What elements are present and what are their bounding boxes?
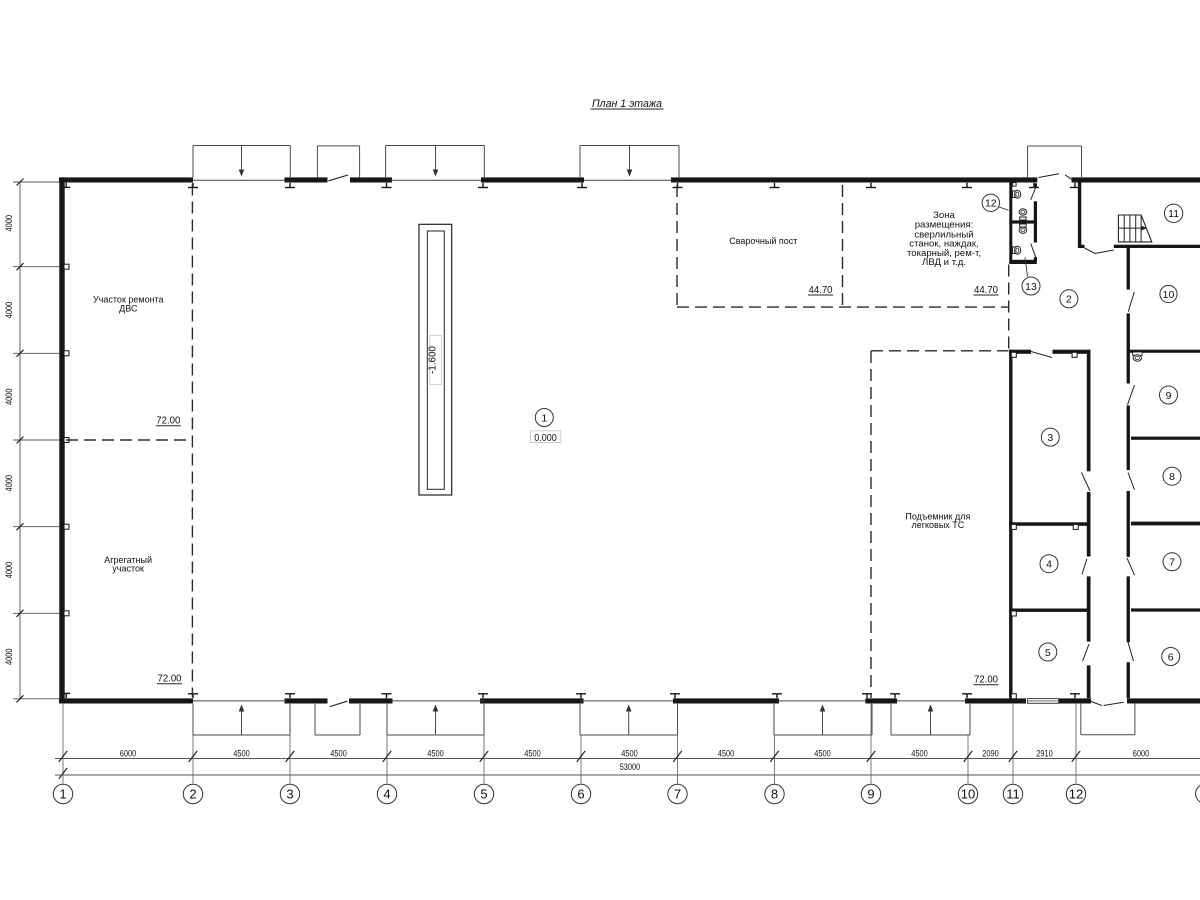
svg-text:5: 5 bbox=[480, 787, 487, 802]
svg-text:4: 4 bbox=[383, 787, 390, 802]
svg-text:План 1 этажа: План 1 этажа bbox=[592, 98, 662, 110]
svg-text:44.70: 44.70 bbox=[809, 285, 833, 296]
svg-text:10: 10 bbox=[961, 787, 975, 802]
svg-text:4: 4 bbox=[1046, 559, 1052, 571]
svg-text:3: 3 bbox=[1047, 432, 1053, 444]
svg-text:ЛВД и т.д.: ЛВД и т.д. bbox=[922, 257, 966, 268]
svg-text:4000: 4000 bbox=[4, 215, 14, 232]
svg-text:53000: 53000 bbox=[620, 762, 641, 772]
svg-text:4500: 4500 bbox=[718, 749, 735, 759]
svg-text:-1.600: -1.600 bbox=[428, 346, 439, 374]
svg-text:72.00: 72.00 bbox=[158, 674, 182, 685]
svg-text:72.00: 72.00 bbox=[156, 416, 180, 427]
svg-text:2: 2 bbox=[189, 787, 196, 802]
svg-text:4500: 4500 bbox=[814, 749, 831, 759]
svg-text:8: 8 bbox=[771, 787, 778, 802]
svg-text:3: 3 bbox=[286, 787, 293, 802]
svg-text:4500: 4500 bbox=[524, 749, 541, 759]
svg-text:13: 13 bbox=[1025, 281, 1037, 293]
svg-text:1: 1 bbox=[541, 412, 547, 424]
svg-text:4500: 4500 bbox=[911, 749, 928, 759]
svg-text:1: 1 bbox=[59, 787, 66, 802]
svg-text:4000: 4000 bbox=[4, 475, 14, 492]
svg-text:12: 12 bbox=[1069, 787, 1083, 802]
svg-text:4500: 4500 bbox=[233, 749, 250, 759]
svg-text:9: 9 bbox=[867, 787, 874, 802]
svg-text:ДВС: ДВС bbox=[119, 304, 138, 314]
svg-text:44.70: 44.70 bbox=[974, 285, 998, 296]
svg-text:2090: 2090 bbox=[982, 749, 999, 759]
svg-text:4500: 4500 bbox=[330, 749, 347, 759]
svg-text:участок: участок bbox=[112, 563, 144, 573]
svg-text:11: 11 bbox=[1006, 787, 1020, 802]
svg-text:0.000: 0.000 bbox=[534, 433, 557, 444]
svg-text:Сварочный пост: Сварочный пост bbox=[729, 236, 797, 246]
svg-text:6000: 6000 bbox=[120, 749, 137, 759]
svg-text:72.00: 72.00 bbox=[974, 675, 998, 686]
svg-text:2: 2 bbox=[1066, 294, 1072, 306]
svg-text:7: 7 bbox=[1169, 557, 1175, 569]
svg-text:6000: 6000 bbox=[1133, 749, 1150, 759]
svg-text:4000: 4000 bbox=[4, 388, 14, 405]
svg-text:8: 8 bbox=[1169, 471, 1175, 483]
svg-text:9: 9 bbox=[1166, 390, 1172, 402]
svg-text:4500: 4500 bbox=[621, 749, 638, 759]
svg-text:10: 10 bbox=[1163, 289, 1175, 301]
svg-text:7: 7 bbox=[674, 787, 681, 802]
svg-text:5: 5 bbox=[1045, 647, 1051, 659]
svg-text:4500: 4500 bbox=[427, 749, 444, 759]
svg-text:легковых ТС: легковых ТС bbox=[911, 520, 964, 530]
svg-text:6: 6 bbox=[1168, 651, 1174, 663]
svg-text:12: 12 bbox=[985, 198, 997, 210]
svg-text:4000: 4000 bbox=[4, 562, 14, 579]
svg-text:4000: 4000 bbox=[4, 302, 14, 319]
svg-text:2910: 2910 bbox=[1036, 749, 1053, 759]
svg-text:4000: 4000 bbox=[4, 648, 14, 665]
svg-text:11: 11 bbox=[1168, 208, 1179, 220]
svg-text:6: 6 bbox=[577, 787, 584, 802]
